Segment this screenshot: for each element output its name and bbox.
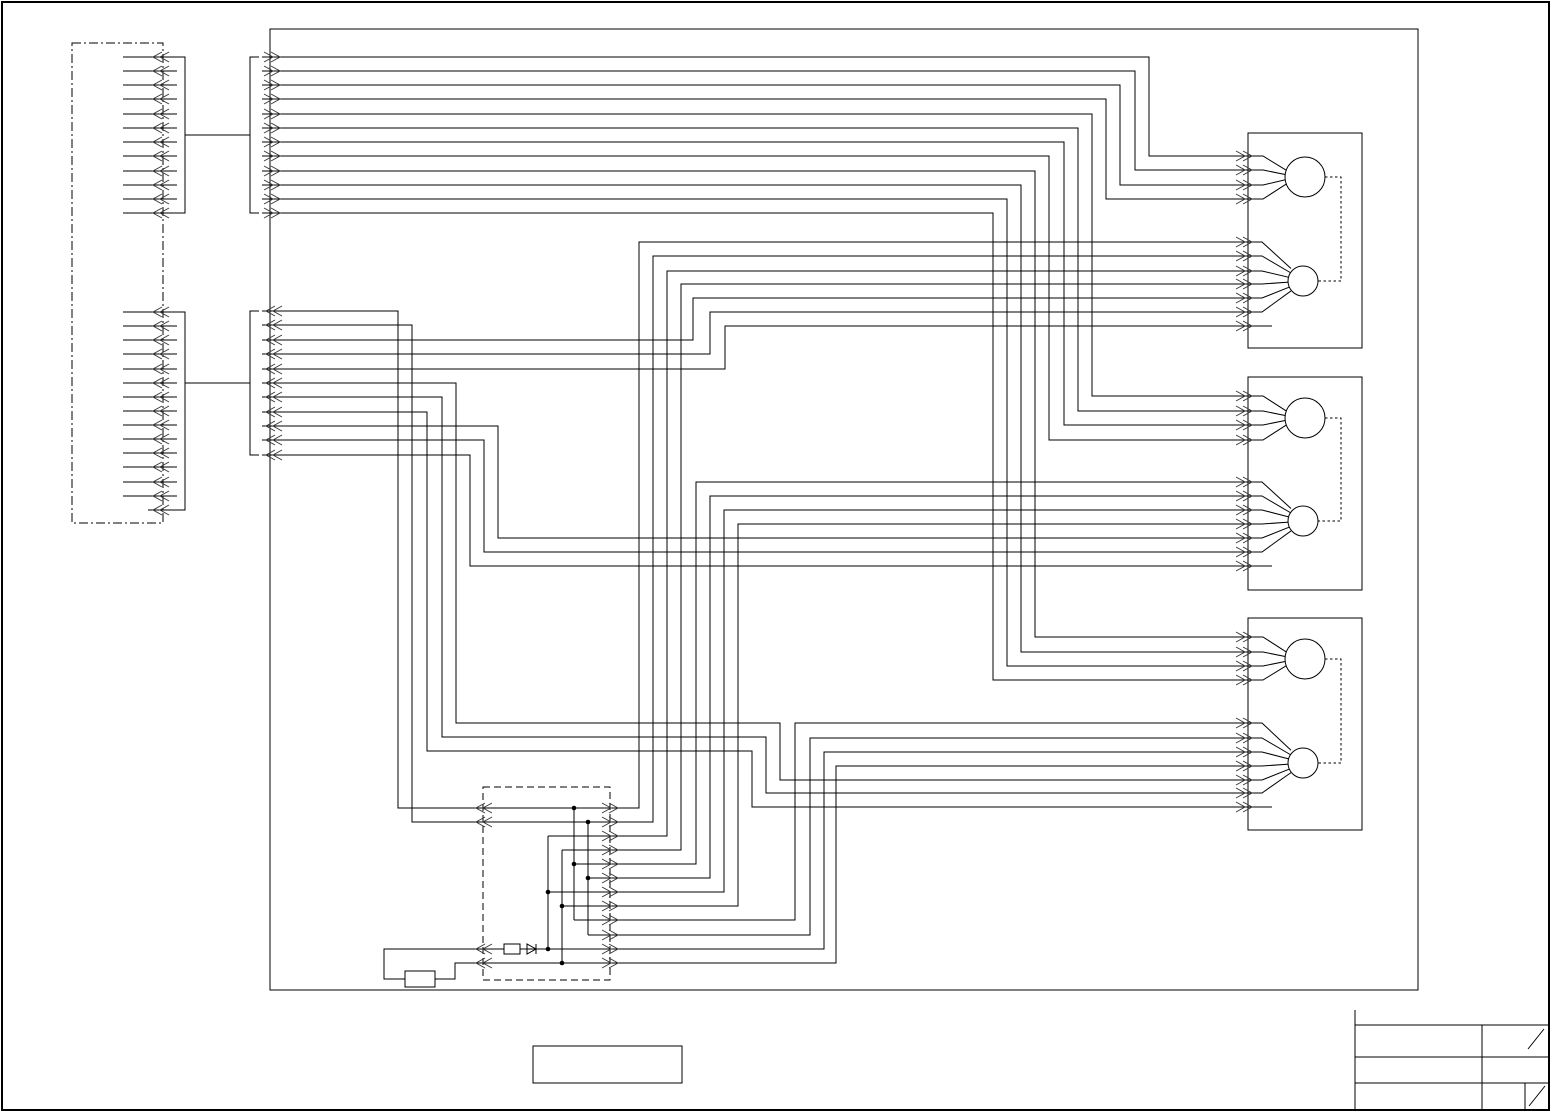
group2-wire bbox=[262, 383, 1248, 780]
small-fan-wire bbox=[1248, 286, 1291, 298]
legend-box bbox=[533, 1046, 682, 1083]
small-fan-wire bbox=[1248, 271, 1291, 278]
brackets-wire bbox=[250, 311, 259, 455]
big-fan-wire bbox=[1248, 652, 1287, 657]
small-fan-wire bbox=[1248, 752, 1291, 759]
group2-wire bbox=[262, 312, 1248, 354]
big-fan-wire bbox=[1248, 170, 1287, 175]
big-fan-wire bbox=[1248, 420, 1287, 425]
big-fan-wire bbox=[1248, 156, 1287, 171]
group1-wire bbox=[262, 71, 1248, 170]
junction-dot bbox=[546, 947, 551, 952]
junction-dot bbox=[586, 820, 591, 825]
junction-dot bbox=[560, 961, 565, 966]
motor-circle-large bbox=[1285, 639, 1325, 679]
motor-circle-small bbox=[1288, 506, 1318, 536]
junction-terminal-box bbox=[483, 787, 610, 980]
big-fan-wire bbox=[1248, 396, 1287, 411]
group1-wire bbox=[262, 171, 1248, 637]
title-block-slash-mark bbox=[1528, 1029, 1544, 1049]
junction-dot bbox=[572, 806, 577, 811]
interlock-dotted-link bbox=[1318, 177, 1341, 281]
group1-wire bbox=[262, 57, 1248, 156]
group2-wire bbox=[262, 325, 483, 822]
schematic-page bbox=[0, 0, 1553, 1113]
small-fan-wire bbox=[1248, 482, 1291, 509]
group1-wire bbox=[262, 185, 1248, 652]
group2-wire bbox=[262, 298, 1248, 340]
junction-dot bbox=[586, 876, 591, 881]
junction-dot bbox=[560, 904, 565, 909]
small-fan-wire bbox=[1248, 522, 1291, 524]
big-fan-wire bbox=[1248, 179, 1287, 185]
small-fan-wire bbox=[1248, 242, 1291, 269]
junction-out-wire bbox=[588, 738, 1248, 935]
motor-circle-large bbox=[1285, 157, 1325, 197]
resistor-symbol bbox=[504, 944, 520, 954]
big-fan-wire bbox=[1248, 637, 1287, 652]
small-fan-wire bbox=[1248, 764, 1291, 766]
wiring-diagram-canvas bbox=[0, 0, 1553, 1113]
junction-out-wire bbox=[574, 723, 1248, 920]
junction-out-wire bbox=[588, 496, 1248, 878]
group1-wire bbox=[262, 199, 1248, 666]
junction-out-wire bbox=[562, 524, 1248, 906]
motor-circle-large bbox=[1285, 398, 1325, 438]
small-fan-wire bbox=[1248, 282, 1291, 284]
motor-circle-small bbox=[1288, 748, 1318, 778]
small-fan-wire bbox=[1248, 773, 1291, 793]
title-block-slash-mark bbox=[1529, 1086, 1545, 1106]
group1-wire bbox=[262, 213, 1248, 680]
small-fan-wire bbox=[1248, 510, 1291, 517]
group2-wire bbox=[262, 412, 1248, 807]
brackets-wire bbox=[177, 57, 185, 213]
group2-wire bbox=[262, 326, 1248, 369]
junction-dot bbox=[572, 862, 577, 867]
group2-wire bbox=[262, 311, 483, 808]
small-fan-wire bbox=[1248, 531, 1291, 552]
big-fan-wire bbox=[1248, 184, 1287, 199]
big-fan-wire bbox=[1248, 661, 1287, 666]
big-fan-wire bbox=[1248, 665, 1287, 680]
small-fan-wire bbox=[1248, 526, 1291, 538]
interlock-dotted-link bbox=[1318, 418, 1341, 521]
motor-circle-small bbox=[1288, 266, 1318, 296]
brackets-wire bbox=[177, 312, 185, 510]
big-fan-wire bbox=[1248, 411, 1287, 416]
small-fan-wire bbox=[1248, 723, 1291, 750]
small-fan-wire bbox=[1248, 291, 1291, 312]
group2-wire bbox=[262, 397, 1248, 793]
sensor-loop-wire bbox=[435, 963, 483, 979]
brackets-wire bbox=[250, 57, 259, 213]
big-fan-wire bbox=[1248, 425, 1287, 440]
small-fan-wire bbox=[1248, 256, 1291, 273]
interlock-dotted-link bbox=[1318, 659, 1341, 763]
harness-boundary-box bbox=[72, 43, 163, 523]
junction-dot bbox=[546, 890, 551, 895]
group1-wire bbox=[262, 85, 1248, 185]
sensor-component-box bbox=[405, 971, 435, 987]
small-fan-wire bbox=[1248, 768, 1291, 780]
